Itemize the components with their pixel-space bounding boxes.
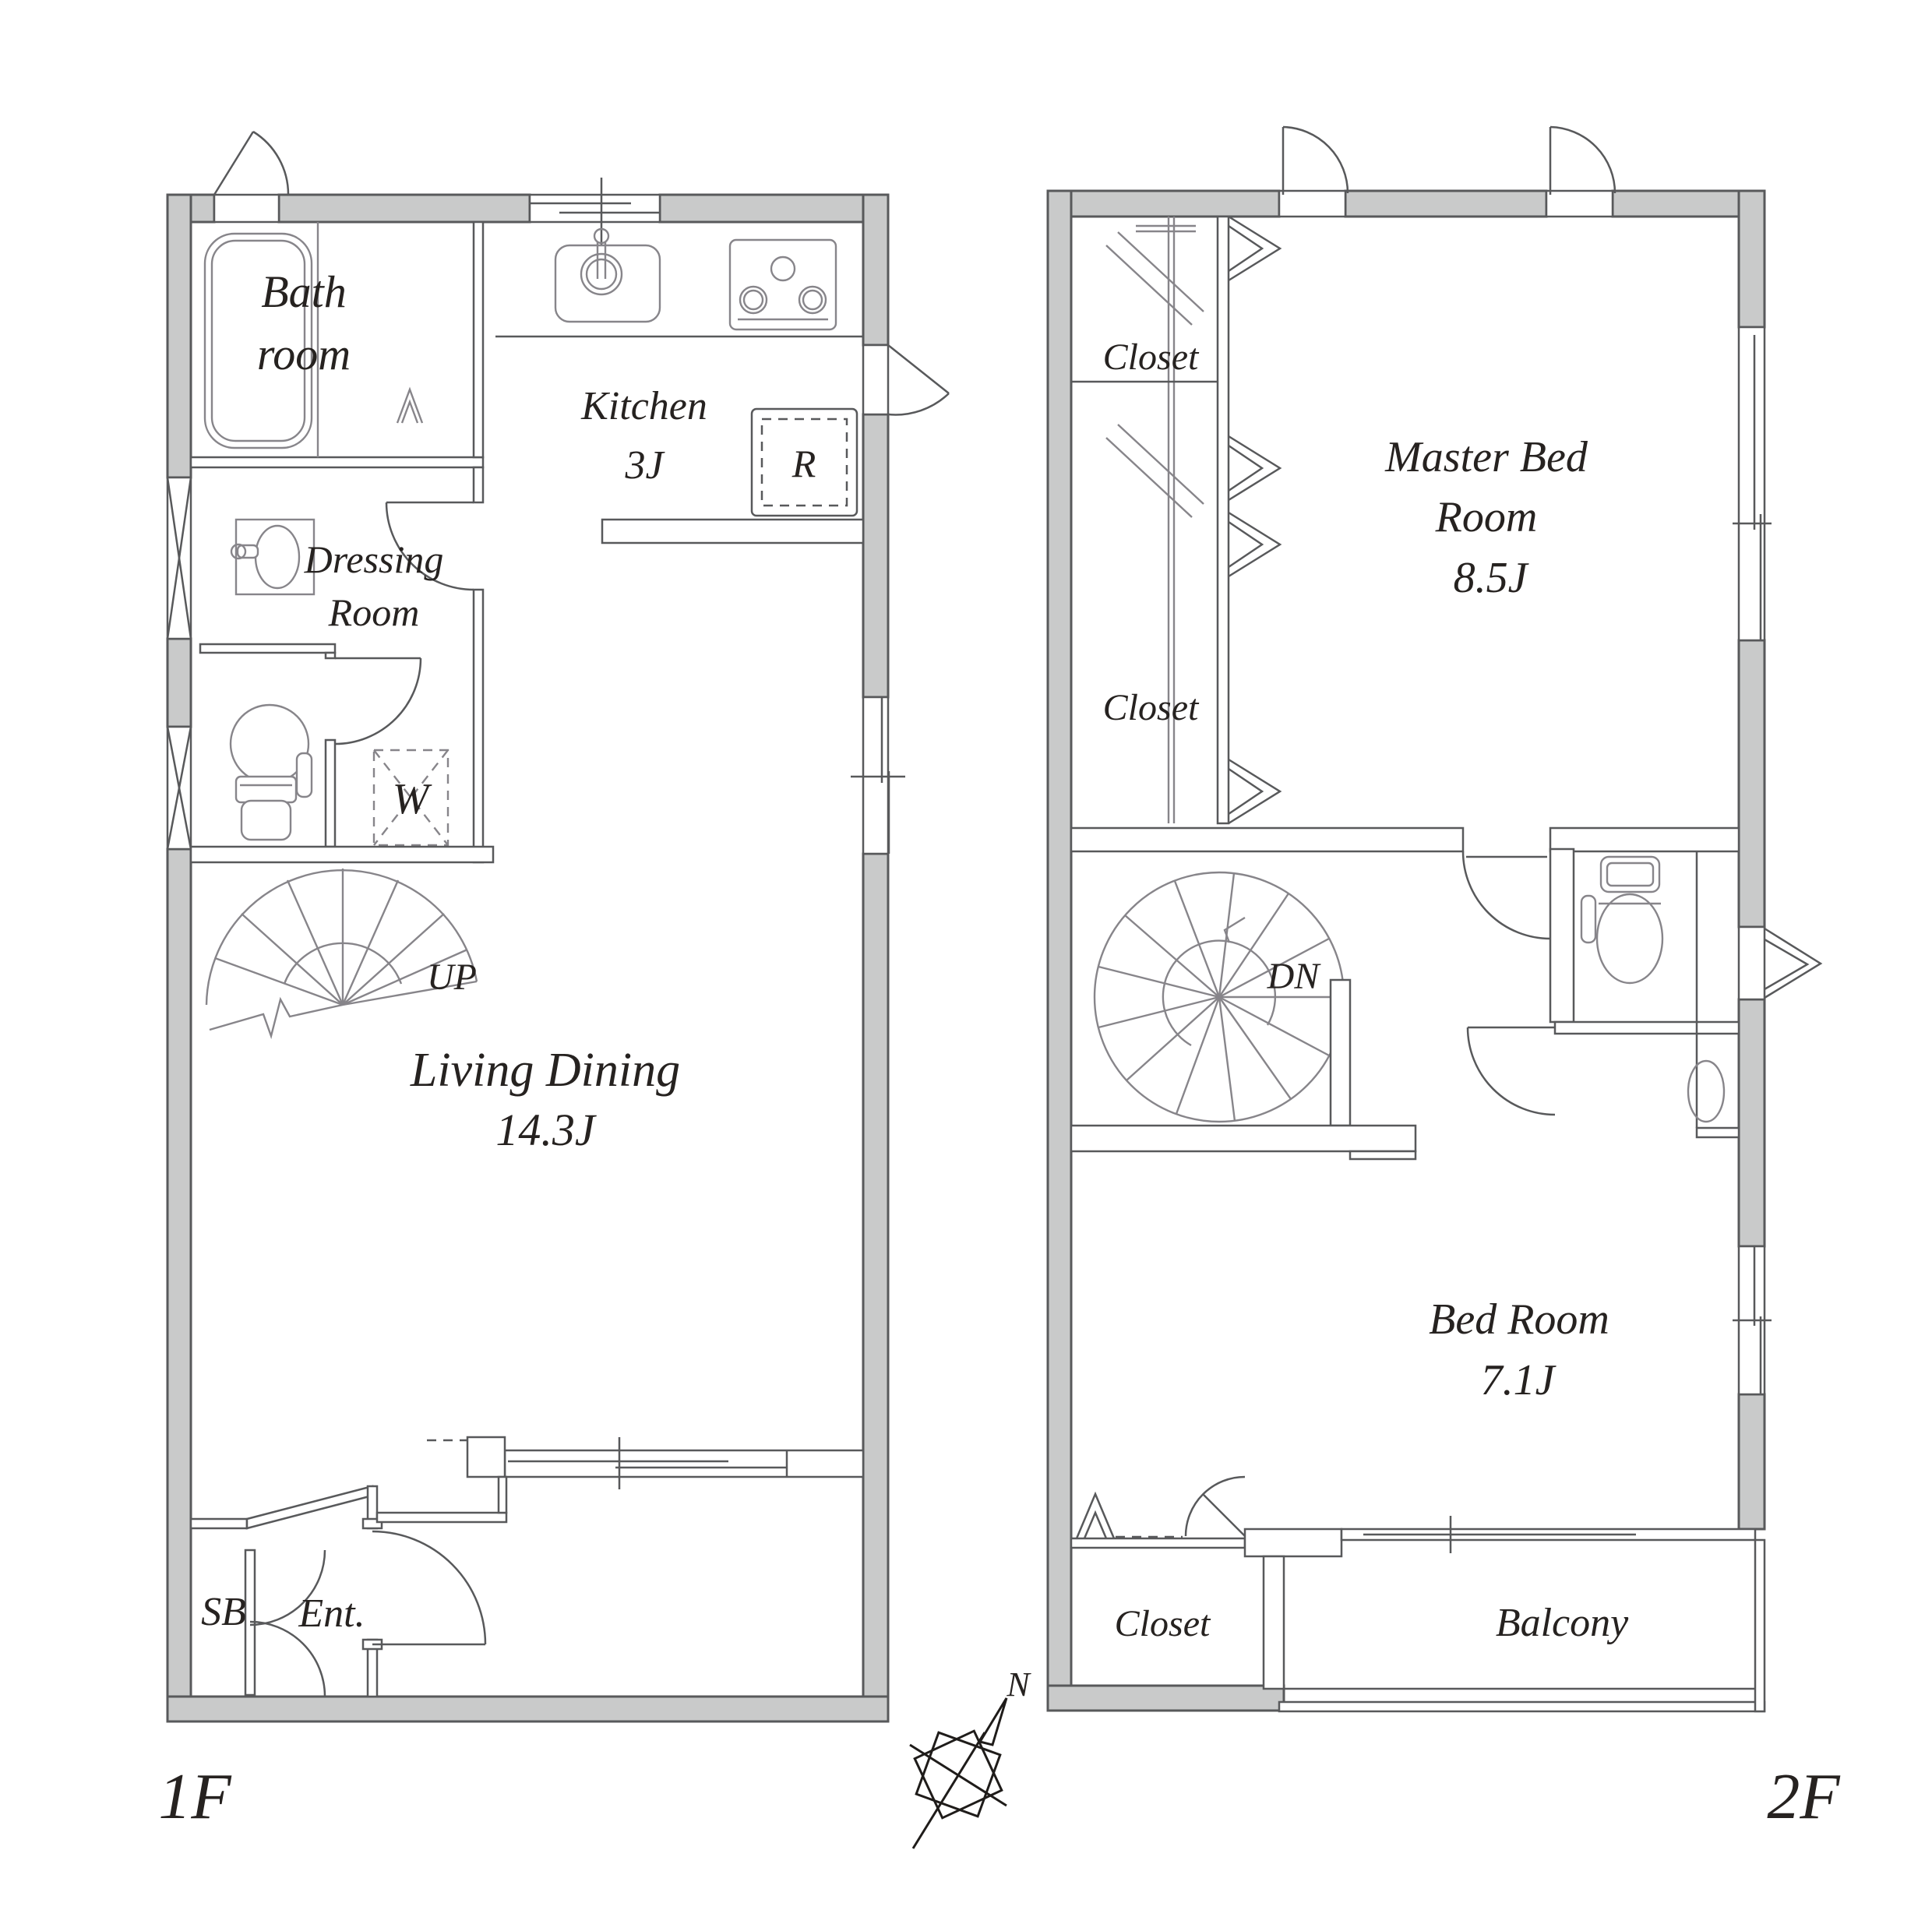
closet-lower-label: Closet bbox=[1115, 1603, 1211, 1644]
living-bottom-window bbox=[427, 1437, 863, 1489]
compass-needle-line bbox=[913, 1732, 985, 1848]
toilet-exterior-door bbox=[1739, 927, 1821, 999]
master-label-line2: Room bbox=[1435, 493, 1538, 541]
kitchen-stove bbox=[730, 240, 836, 329]
closet-upper2-label: Closet bbox=[1103, 687, 1200, 728]
master-side-window bbox=[1733, 327, 1772, 640]
stair-top-wall bbox=[191, 847, 493, 862]
stairs-up-label: UP bbox=[427, 957, 477, 998]
dressing-label-line2: Room bbox=[328, 590, 420, 634]
closets-upper bbox=[1071, 217, 1280, 823]
spiral-stair-down bbox=[1095, 872, 1344, 1122]
top-door-1 bbox=[1279, 127, 1348, 217]
floor-1f: Bath room Kitchen 3J R Dressing Room W U… bbox=[158, 132, 949, 1833]
bedroom-side-window bbox=[1733, 1246, 1772, 1394]
kitchen-sink bbox=[555, 229, 660, 322]
floor-2f: Closet Closet Master Bed Room 8.5J DN Be… bbox=[1048, 127, 1841, 1833]
toilet-room-1f bbox=[200, 644, 421, 847]
entrance-area bbox=[191, 1477, 506, 1697]
toilet-room-2f bbox=[1468, 849, 1739, 1137]
bathroom-label-line1: Bath bbox=[261, 266, 347, 317]
closet-lower bbox=[1071, 1477, 1341, 1689]
dressing-label-line1: Dressing bbox=[304, 537, 444, 581]
compass-north-label: N bbox=[1006, 1665, 1031, 1704]
master-size-label: 8.5J bbox=[1454, 554, 1530, 602]
stair-enclosure-walls bbox=[1071, 980, 1416, 1159]
living-size-label: 14.3J bbox=[495, 1105, 598, 1155]
stairs-down-label: DN bbox=[1267, 956, 1322, 997]
kitchen-size-label: 3J bbox=[624, 443, 665, 488]
floorplan-canvas: Bath room Kitchen 3J R Dressing Room W U… bbox=[0, 0, 1932, 1924]
floor1-label: 1F bbox=[158, 1760, 232, 1833]
balcony-label: Balcony bbox=[1496, 1601, 1629, 1645]
kitchen-label: Kitchen bbox=[580, 384, 707, 428]
exterior-door-top-left bbox=[214, 132, 288, 222]
left-wall-window-1 bbox=[167, 477, 191, 639]
bedroom-label: Bed Room bbox=[1429, 1295, 1609, 1344]
compass-north-arrow bbox=[980, 1698, 1007, 1745]
counter-bar bbox=[602, 520, 863, 543]
shoebox-label: SB bbox=[201, 1590, 246, 1634]
compass: N bbox=[910, 1665, 1031, 1848]
fridge-label: R bbox=[791, 442, 816, 485]
top-door-2 bbox=[1546, 127, 1615, 217]
wall-center-vertical bbox=[474, 467, 483, 862]
master-label-line1: Master Bed bbox=[1384, 433, 1588, 481]
floor2-label: 2F bbox=[1767, 1760, 1841, 1833]
walls-2f-outer bbox=[1048, 191, 1765, 1711]
washer-label: W bbox=[393, 775, 432, 823]
living-side-window bbox=[851, 697, 905, 854]
left-wall-window-2 bbox=[167, 727, 191, 849]
kitchen-back-door bbox=[863, 345, 949, 414]
living-label: Living Dining bbox=[410, 1044, 680, 1097]
entrance-label: Ent. bbox=[298, 1591, 365, 1636]
closet-upper1-label: Closet bbox=[1103, 337, 1200, 378]
bathroom-label-line2: room bbox=[257, 329, 351, 379]
spiral-stair-up bbox=[206, 869, 477, 1036]
bedroom-size-label: 7.1J bbox=[1481, 1356, 1557, 1404]
